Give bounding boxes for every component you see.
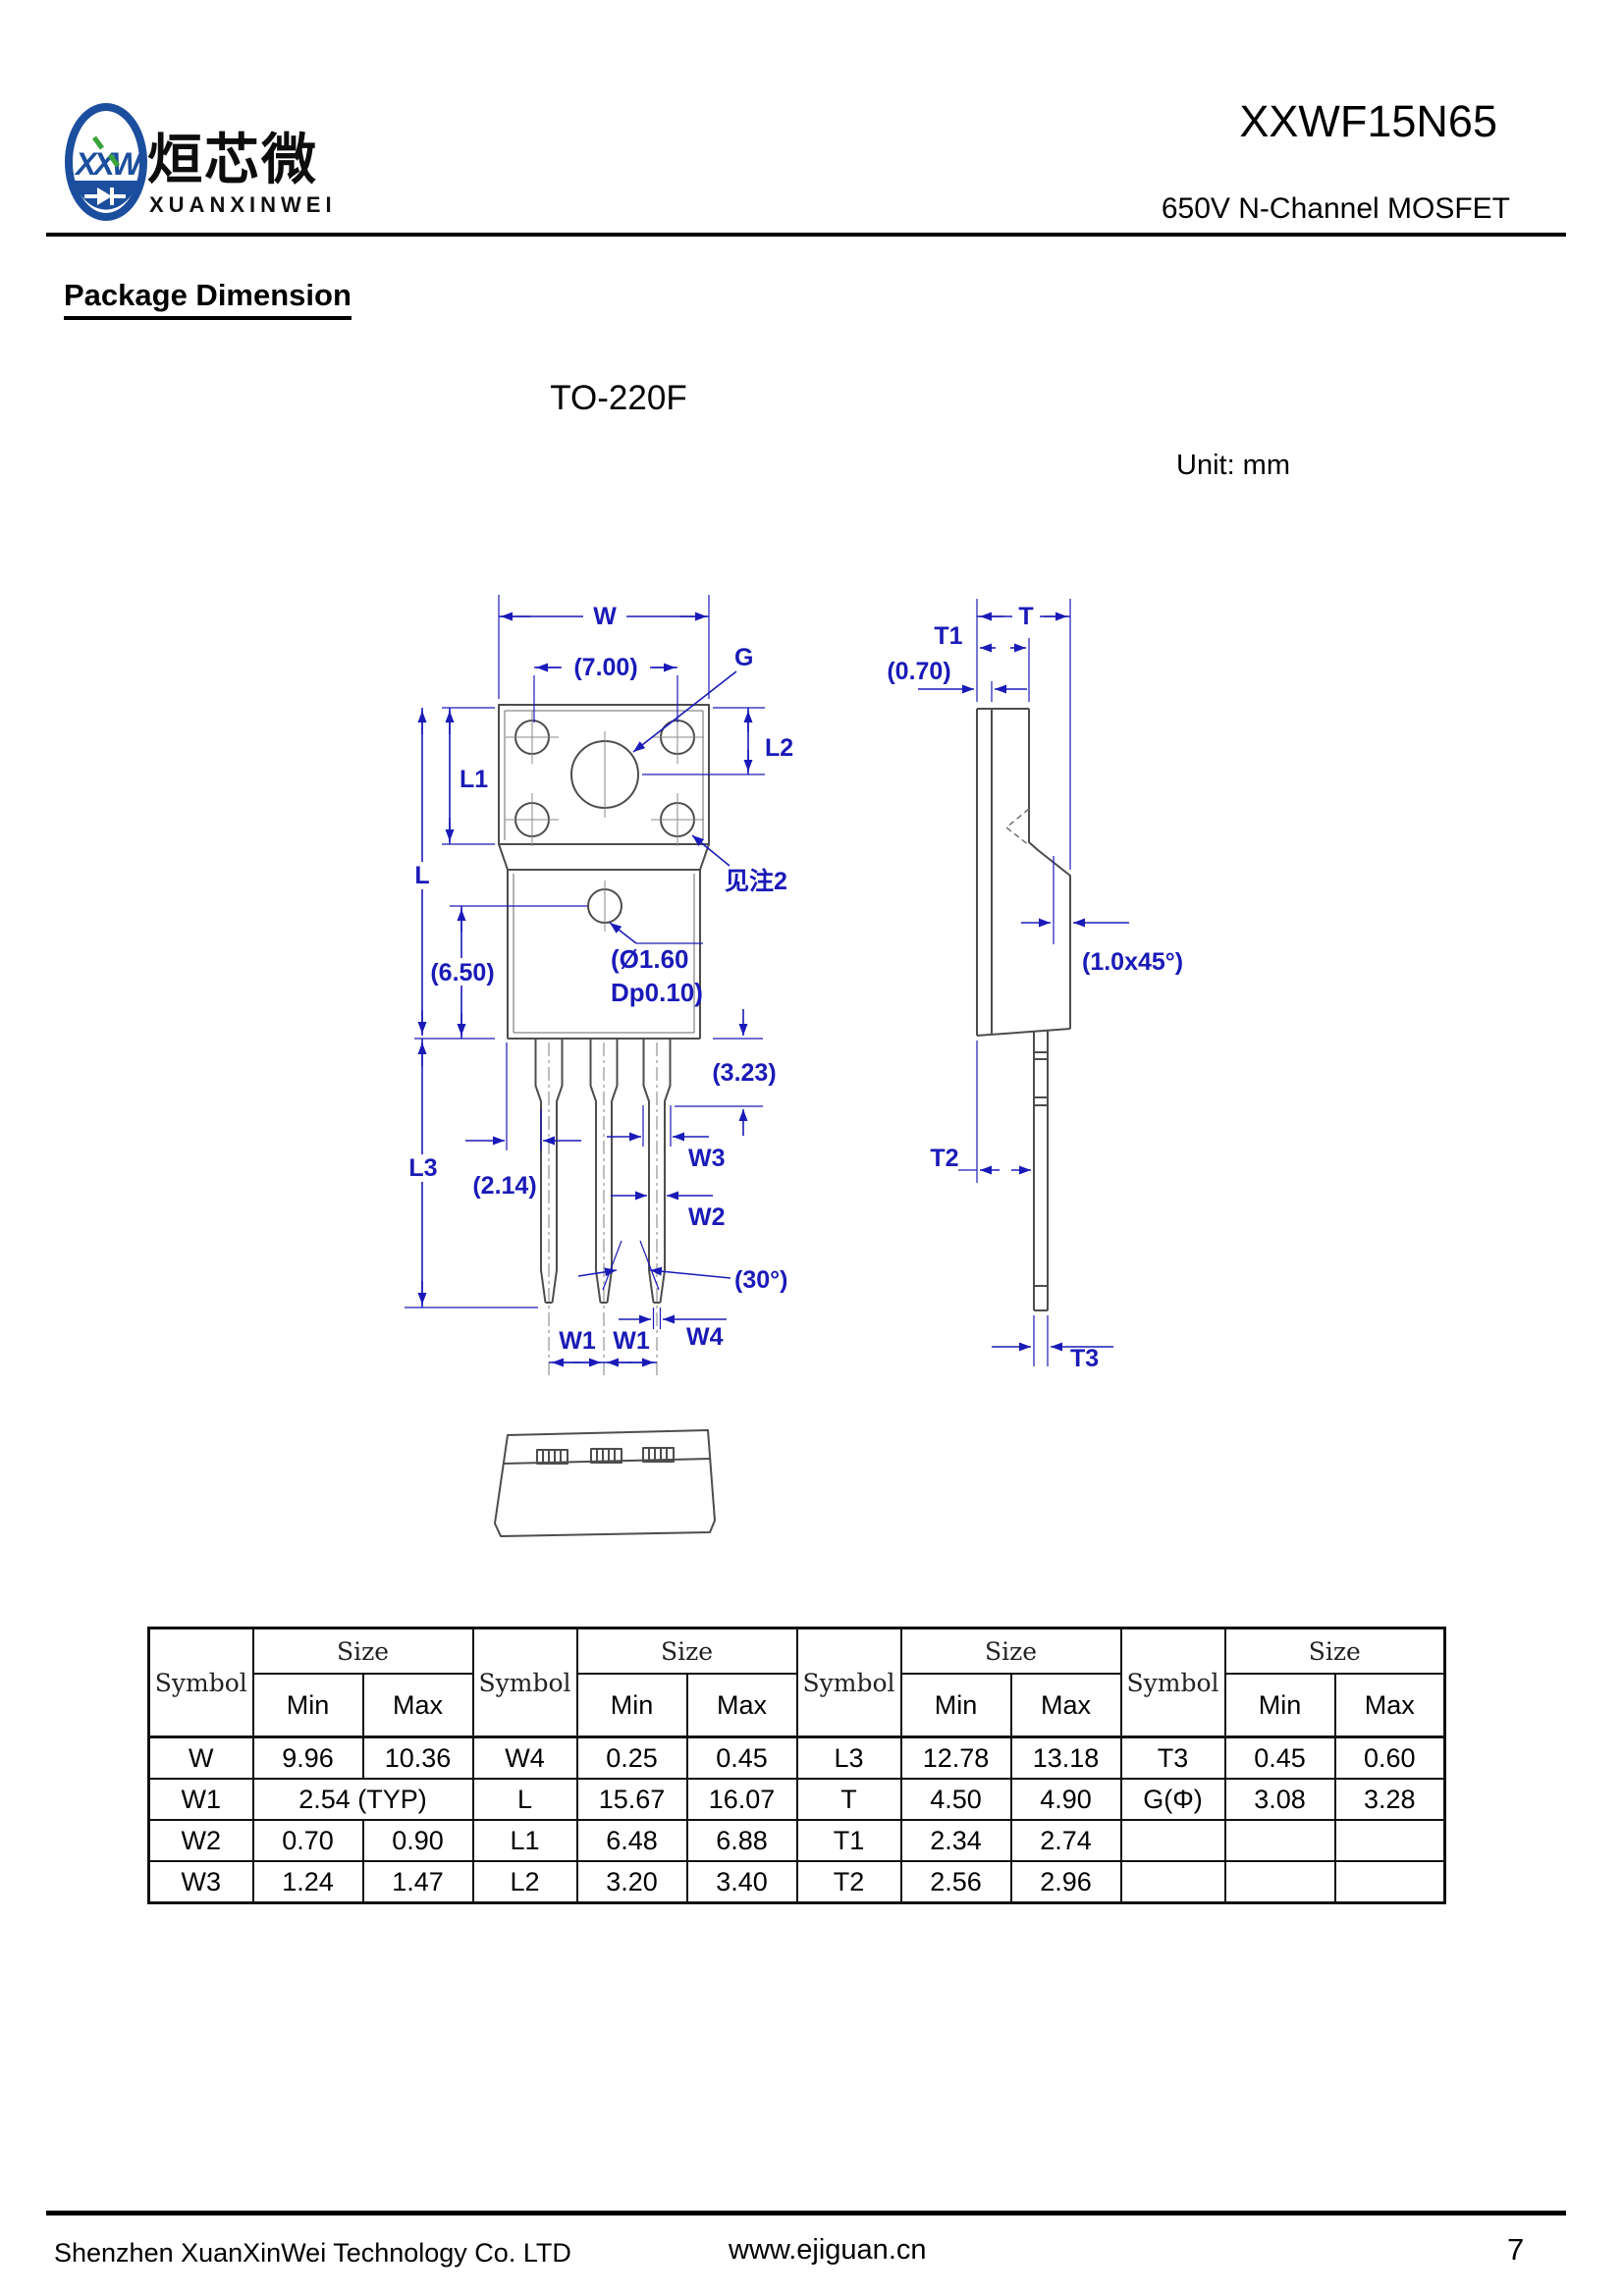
value-cell: 2.34: [901, 1820, 1011, 1861]
dimension-table: Symbol Size Symbol Size Symbol Size Symb…: [147, 1627, 1446, 1904]
company-name-cn: 烜芯微: [147, 116, 318, 195]
value-cell: 1.47: [363, 1861, 473, 1903]
value-cell: 10.36: [363, 1737, 473, 1780]
company-logo: XXW: [65, 102, 149, 224]
value-cell: 3.20: [577, 1861, 687, 1903]
col-header-size: Size: [1225, 1629, 1445, 1675]
dim-label-note2: 见注2: [725, 867, 787, 895]
col-header-size: Size: [901, 1629, 1121, 1675]
dim-label-w3: W3: [688, 1145, 726, 1172]
dim-label-t2: T2: [930, 1145, 958, 1172]
package-name: TO-220F: [511, 379, 727, 418]
dim-label-w1a: W1: [559, 1327, 596, 1355]
symbol-cell: [1121, 1820, 1225, 1861]
col-header-min: Min: [1225, 1674, 1335, 1737]
dim-label-hole1: (Ø1.60: [611, 944, 689, 974]
dim-label-w2: W2: [688, 1203, 726, 1231]
value-cell: 12.78: [901, 1737, 1011, 1780]
section-title: Package Dimension: [64, 278, 352, 320]
symbol-cell: G(Φ): [1121, 1779, 1225, 1820]
col-header-size: Size: [253, 1629, 473, 1675]
dim-label-l1: L1: [460, 766, 488, 793]
logo-icon: XXW: [65, 102, 149, 224]
value-cell: 0.45: [1225, 1737, 1335, 1780]
col-header-size: Size: [577, 1629, 797, 1675]
symbol-cell: L1: [473, 1820, 577, 1861]
value-cell: 15.67: [577, 1779, 687, 1820]
dim-label-t3: T3: [1070, 1345, 1099, 1372]
front-view: [499, 705, 709, 1376]
unit-note: Unit: mm: [1176, 450, 1290, 482]
dim-label-w4: W4: [686, 1323, 724, 1351]
dim-label-t1: T1: [934, 622, 962, 650]
dim-label-214: (2.14): [472, 1172, 536, 1200]
footer-page-number: 7: [1507, 2232, 1524, 2268]
footer-rule: [46, 2211, 1566, 2216]
value-cell: 4.50: [901, 1779, 1011, 1820]
footer-company: Shenzhen XuanXinWei Technology Co. LTD: [54, 2238, 571, 2269]
dim-label-l3: L3: [408, 1154, 437, 1182]
value-cell: 0.25: [577, 1737, 687, 1780]
value-cell: [1225, 1861, 1335, 1903]
col-header-symbol: Symbol: [149, 1629, 253, 1737]
table-row: W2 0.70 0.90 L1 6.48 6.88 T1 2.34 2.74: [149, 1820, 1445, 1861]
dim-label-t: T: [1018, 603, 1033, 630]
dim-label-g: G: [734, 644, 753, 671]
part-subtitle: 650V N-Channel MOSFET: [1162, 192, 1510, 226]
value-cell: 2.96: [1011, 1861, 1121, 1903]
symbol-cell: L3: [797, 1737, 901, 1780]
value-cell: 6.88: [687, 1820, 797, 1861]
value-cell: 2.56: [901, 1861, 1011, 1903]
dim-label-l2: L2: [765, 734, 793, 762]
col-header-min: Min: [253, 1674, 363, 1737]
value-cell: 0.60: [1335, 1737, 1445, 1780]
dimensions-front: W (7.00) G L2 L1: [405, 595, 793, 1362]
side-view: [977, 709, 1070, 1310]
company-name-en: XUANXINWEI: [149, 192, 337, 218]
col-header-symbol: Symbol: [473, 1629, 577, 1737]
dim-label-w: W: [593, 603, 617, 630]
dim-label-l: L: [414, 862, 429, 889]
value-cell: 3.08: [1225, 1779, 1335, 1820]
value-cell: 0.45: [687, 1737, 797, 1780]
value-cell: 16.07: [687, 1779, 797, 1820]
value-cell: 0.90: [363, 1820, 473, 1861]
logo-monogram: XXW: [74, 146, 144, 182]
value-cell: 0.70: [253, 1820, 363, 1861]
value-cell: 13.18: [1011, 1737, 1121, 1780]
table-row: W3 1.24 1.47 L2 3.20 3.40 T2 2.56 2.96: [149, 1861, 1445, 1903]
part-number: XXWF15N65: [1239, 96, 1497, 147]
symbol-cell: W1: [149, 1779, 253, 1820]
value-cell: 4.90: [1011, 1779, 1121, 1820]
symbol-cell: L2: [473, 1861, 577, 1903]
value-cell: 3.28: [1335, 1779, 1445, 1820]
value-cell: 3.40: [687, 1861, 797, 1903]
symbol-cell: T1: [797, 1820, 901, 1861]
bottom-view: [495, 1430, 715, 1536]
symbol-cell: T: [797, 1779, 901, 1820]
col-header-symbol: Symbol: [797, 1629, 901, 1737]
col-header-min: Min: [577, 1674, 687, 1737]
col-header-max: Max: [1335, 1674, 1445, 1737]
header-rule: [46, 233, 1566, 237]
value-cell: 2.54 (TYP): [253, 1779, 473, 1820]
dim-label-chamfer: (1.0x45°): [1082, 948, 1183, 976]
symbol-cell: T3: [1121, 1737, 1225, 1780]
table-row: W 9.96 10.36 W4 0.25 0.45 L3 12.78 13.18…: [149, 1737, 1445, 1780]
symbol-cell: W: [149, 1737, 253, 1780]
value-cell: 2.74: [1011, 1820, 1121, 1861]
dim-label-700: (7.00): [573, 654, 637, 681]
dim-label-w1b: W1: [613, 1327, 650, 1355]
value-cell: [1335, 1861, 1445, 1903]
symbol-cell: [1121, 1861, 1225, 1903]
dimensions-side: T T1 (0.70) (1.0x45°) T2 T3: [887, 599, 1183, 1372]
value-cell: [1335, 1820, 1445, 1861]
datasheet-page: XXW 烜芯微 XUANXINWEI XXWF15N65 650V N-Chan…: [0, 0, 1623, 2296]
value-cell: 1.24: [253, 1861, 363, 1903]
value-cell: 6.48: [577, 1820, 687, 1861]
symbol-cell: T2: [797, 1861, 901, 1903]
col-header-max: Max: [687, 1674, 797, 1737]
symbol-cell: W3: [149, 1861, 253, 1903]
col-header-symbol: Symbol: [1121, 1629, 1225, 1737]
value-cell: 9.96: [253, 1737, 363, 1780]
symbol-cell: W2: [149, 1820, 253, 1861]
dim-label-30: (30°): [734, 1266, 787, 1294]
col-header-max: Max: [363, 1674, 473, 1737]
dim-label-hole2: Dp0.10): [611, 978, 703, 1007]
footer-website: www.ejiguan.cn: [729, 2234, 927, 2267]
col-header-max: Max: [1011, 1674, 1121, 1737]
symbol-cell: W4: [473, 1737, 577, 1780]
dim-label-070: (0.70): [887, 658, 950, 685]
value-cell: [1225, 1820, 1335, 1861]
dim-label-323: (3.23): [712, 1059, 776, 1087]
symbol-cell: L: [473, 1779, 577, 1820]
table-row: W1 2.54 (TYP) L 15.67 16.07 T 4.50 4.90 …: [149, 1779, 1445, 1820]
dim-label-650: (6.50): [430, 959, 494, 987]
package-drawing: W (7.00) G L2 L1: [383, 569, 1217, 1561]
col-header-min: Min: [901, 1674, 1011, 1737]
